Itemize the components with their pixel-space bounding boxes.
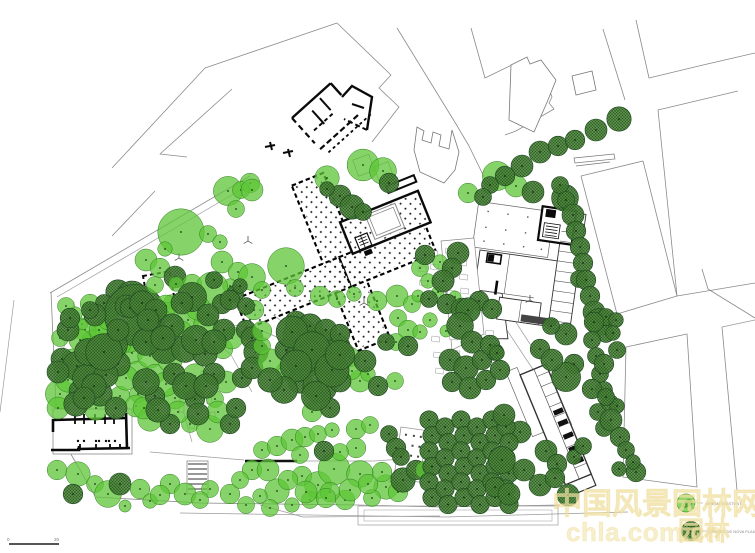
svg-text:20: 20 [54,537,60,542]
svg-text:园林: 园林 [678,516,730,546]
